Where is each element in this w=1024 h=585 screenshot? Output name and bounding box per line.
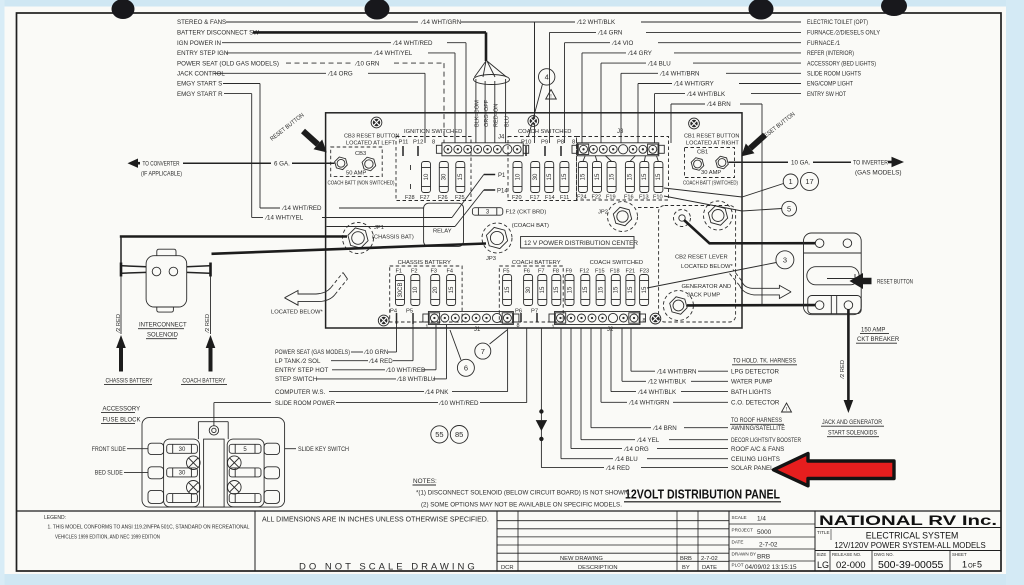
svg-text:COMPUTER W.S.: COMPUTER W.S. [275,389,325,396]
svg-text:FUSE BLOCK: FUSE BLOCK [103,418,141,424]
svg-text:SOLAR PANEL: SOLAR PANEL [731,465,774,472]
svg-text:JP3: JP3 [486,256,496,262]
svg-text:TITLE: TITLE [817,530,830,535]
svg-text:1: 1 [962,560,967,570]
svg-text:F6: F6 [524,269,531,275]
svg-text:F13: F13 [639,195,649,201]
svg-text:12VOLT DISTRIBUTION PANEL: 12VOLT DISTRIBUTION PANEL [625,488,780,502]
svg-text:RELAY: RELAY [433,229,452,235]
svg-text:∕14 BRN: ∕14 BRN [652,425,677,432]
svg-text:CB1: CB1 [697,150,708,156]
svg-text:SCALE: SCALE [732,515,747,520]
svg-text:AWNING/SATELLITE: AWNING/SATELLITE [731,425,785,432]
svg-text:15: 15 [547,173,553,180]
svg-text:J1: J1 [474,327,481,333]
svg-text:F20: F20 [512,195,522,201]
svg-text:15: 15 [656,173,662,180]
svg-text:1: 1 [789,177,793,186]
svg-text:TO INVERTER: TO INVERTER [853,161,889,167]
svg-text:50 AMP: 50 AMP [346,171,366,177]
svg-text:3: 3 [783,256,787,265]
svg-text:∕14 WHT/BLK: ∕14 WHT/BLK [637,389,677,396]
svg-text:15: 15 [583,286,589,293]
svg-text:LPG DETECTOR: LPG DETECTOR [731,368,780,375]
svg-text:P10: P10 [521,140,531,146]
svg-text:30: 30 [179,447,186,453]
svg-text:20: 20 [433,286,439,293]
svg-text:ENTRY STEP IGN: ENTRY STEP IGN [177,50,228,57]
svg-text:SLIDE ROOM POWER: SLIDE ROOM POWER [275,400,335,407]
svg-text:2-7-02: 2-7-02 [759,542,778,549]
svg-text:150 AMP: 150 AMP [861,328,885,334]
svg-text:F26: F26 [438,195,448,201]
svg-text:1/4: 1/4 [757,516,766,523]
svg-text:15: 15 [614,286,620,293]
svg-text:ENTRY STEP HOT: ENTRY STEP HOT [275,367,329,374]
svg-text:(GAS MODELS): (GAS MODELS) [855,170,902,177]
svg-text:30: 30 [442,173,448,180]
svg-text:6: 6 [464,364,468,373]
svg-text:85: 85 [455,430,463,439]
svg-text:8: 8 [432,140,435,146]
svg-text:∕2 RED: ∕2 RED [205,314,211,334]
svg-text:∕12 WHT/BLK: ∕12 WHT/BLK [576,19,616,26]
svg-text:F14: F14 [545,195,555,201]
svg-text:∕14 ORG: ∕14 ORG [623,446,649,453]
svg-text:GENERATOR AND: GENERATOR AND [682,284,732,290]
svg-text:ENTRY SW HOT: ENTRY SW HOT [807,91,846,98]
svg-text:COACH SWITCHED: COACH SWITCHED [590,260,643,266]
svg-text:LP TANK ∕2 SOL: LP TANK ∕2 SOL [275,358,321,365]
svg-text:EMGY START R: EMGY START R [177,91,223,98]
svg-text:!: ! [786,407,787,413]
svg-text:F12: F12 [580,269,590,275]
svg-text:CHASSIS BATTERY: CHASSIS BATTERY [398,260,451,266]
svg-text:PROJECT: PROJECT [732,528,754,533]
svg-text:DATE: DATE [702,565,717,571]
svg-text:C.O. DETECTOR: C.O. DETECTOR [731,400,780,407]
svg-text:15: 15 [505,286,511,293]
svg-text:F1: F1 [396,269,403,275]
svg-text:15: 15 [540,286,546,293]
svg-text:DECOR LIGHTS/TV BOOSTER: DECOR LIGHTS/TV BOOSTER [731,437,801,444]
svg-text:8: 8 [517,323,520,329]
svg-text:LOCATED BELOW*: LOCATED BELOW* [271,310,323,316]
svg-text:BATH LIGHTS: BATH LIGHTS [731,389,771,396]
svg-text:J4: J4 [498,135,505,141]
svg-text:DCR: DCR [501,565,514,571]
svg-text:∕12 WHT/BLK: ∕12 WHT/BLK [647,379,687,386]
svg-text:P14: P14 [497,189,508,195]
svg-text:15: 15 [562,173,568,180]
svg-text:ROOF A/C & FANS: ROOF A/C & FANS [731,446,784,453]
svg-text:7: 7 [481,347,485,356]
svg-text:∕14 WHT/GRN: ∕14 WHT/GRN [420,19,461,26]
svg-text:∕14 WHT/GRY: ∕14 WHT/GRY [673,81,714,88]
svg-text:RESET BUTTON: RESET BUTTON [877,280,913,286]
svg-text:DESCRIPTION: DESCRIPTION [578,565,618,571]
svg-text:∕14 RED: ∕14 RED [368,358,393,365]
svg-text:BRB: BRB [680,556,692,562]
svg-text:∕10 GRN: ∕10 GRN [354,60,379,67]
svg-text:SIZE: SIZE [817,552,827,557]
svg-text:IGN POWER IN: IGN POWER IN [177,40,221,47]
svg-text:BY: BY [682,565,690,571]
svg-text:∕14 ORG: ∕14 ORG [327,71,353,78]
svg-text:SLIDE ROOM LIGHTS: SLIDE ROOM LIGHTS [807,71,861,78]
svg-text:F12 (CKT BRD): F12 (CKT BRD) [506,210,547,216]
svg-text:5: 5 [787,204,791,213]
svg-text:COACH BATTERY: COACH BATTERY [182,378,225,385]
svg-text:15: 15 [581,173,587,180]
svg-text:10: 10 [413,286,419,293]
svg-text:15: 15 [642,286,648,293]
svg-text:CEILING LIGHTS: CEILING LIGHTS [731,456,780,463]
svg-text:8: 8 [572,140,575,146]
svg-text:500-39-00055: 500-39-00055 [878,559,944,571]
svg-text:POWER SEAT (GAS MODELS): POWER SEAT (GAS MODELS) [275,349,350,356]
svg-text:ELECTRIC TOILET (OPT): ELECTRIC TOILET (OPT) [807,19,868,26]
svg-text:F2: F2 [411,269,418,275]
svg-text:30: 30 [526,286,532,293]
svg-text:∕14 WHT/BLK: ∕14 WHT/BLK [686,91,726,98]
svg-text:∕10 GRN: ∕10 GRN [363,349,388,356]
svg-text:ACCESSORY: ACCESSORY [103,407,141,413]
svg-text:LEGEND:: LEGEND: [44,515,66,521]
svg-text:∕14 WHT/BRN: ∕14 WHT/BRN [659,71,700,78]
svg-text:START SOLENOIDS: START SOLENOIDS [828,431,877,437]
svg-text:COACH BATT (SWITCHED): COACH BATT (SWITCHED) [683,181,738,187]
svg-text:F19: F19 [606,195,616,201]
svg-text:F4: F4 [447,269,454,275]
svg-text:∕10 WHT/RED: ∕10 WHT/RED [385,367,426,374]
svg-text:LG: LG [817,560,829,570]
svg-text:10: 10 [424,173,430,180]
svg-text:VEHICLES 1999 EDITION, AND NEC: VEHICLES 1999 EDITION, AND NEC 1999 EDIT… [55,535,160,541]
svg-text:30 AMP: 30 AMP [701,170,721,176]
svg-text:∕14 BRN: ∕14 BRN [706,101,731,108]
svg-text:15: 15 [628,286,634,293]
svg-text:F28: F28 [405,195,415,201]
svg-text:F18: F18 [610,269,620,275]
svg-text:F5: F5 [503,269,510,275]
svg-text:F27: F27 [420,195,430,201]
svg-text:ELECTRICAL SYSTEM: ELECTRICAL SYSTEM [866,531,959,541]
svg-text:∕14 WHT/GRN: ∕14 WHT/GRN [628,400,669,407]
svg-text:∕14 WHT/RED: ∕14 WHT/RED [281,205,322,212]
svg-text:DRAWN BY: DRAWN BY [732,552,757,557]
svg-text:LOCATED AT LEFT: LOCATED AT LEFT [346,141,396,147]
svg-text:SHEET: SHEET [952,552,967,557]
svg-text:P12: P12 [413,140,423,146]
svg-text:JP2: JP2 [598,210,608,216]
svg-text:TO ROOF HARNESS: TO ROOF HARNESS [731,417,782,424]
svg-text:TO CONVERTER: TO CONVERTER [143,161,180,168]
svg-text:FURNACE ∕2/DIESELS ONLY: FURNACE ∕2/DIESELS ONLY [807,30,880,37]
svg-text:FURNACE ∕1: FURNACE ∕1 [807,40,841,47]
svg-text:J2: J2 [607,327,614,333]
svg-text:P1: P1 [498,173,506,179]
svg-text:∕14 YEL: ∕14 YEL [636,437,660,444]
svg-text:F9: F9 [566,269,573,275]
svg-text:STEREO & FANS: STEREO & FANS [177,19,226,26]
svg-text:FRONT SLIDE: FRONT SLIDE [92,447,126,453]
svg-text:4: 4 [545,73,549,82]
svg-text:DO NOT SCALE DRAWING: DO NOT SCALE DRAWING [299,562,478,573]
svg-text:F24: F24 [577,195,587,201]
svg-text:F7: F7 [538,269,545,275]
svg-text:P5: P5 [406,309,413,315]
svg-text:F21: F21 [626,269,636,275]
svg-text:∕14 WHT/BRN: ∕14 WHT/BRN [656,368,697,375]
svg-text:∕14 PNK: ∕14 PNK [424,389,449,396]
svg-text:!: ! [550,94,551,100]
svg-text:RELEASE NO.: RELEASE NO. [832,552,861,557]
svg-text:∕14 GRY: ∕14 GRY [627,50,652,57]
svg-text:IGNITION SWITCHED: IGNITION SWITCHED [404,129,462,135]
svg-text:∕14 WHT/YEL: ∕14 WHT/YEL [264,215,304,222]
svg-text:12 V POWER DISTRIBUTION CENTER: 12 V POWER DISTRIBUTION CENTER [524,240,638,247]
svg-text:F16: F16 [624,195,634,201]
svg-text:JP1: JP1 [374,225,384,231]
svg-text:NATIONAL RV Inc.: NATIONAL RV Inc. [819,513,997,528]
svg-text:15: 15 [609,173,615,180]
svg-text:STEP SWITCH: STEP SWITCH [275,376,317,383]
svg-text:CHASSIS BATTERY: CHASSIS BATTERY [106,378,153,385]
svg-text:BLU: BLU [505,116,511,127]
svg-text:1: 1 [425,325,428,331]
svg-text:∕18 WHT/BLU: ∕18 WHT/BLU [396,376,435,383]
svg-text:P8: P8 [557,140,564,146]
svg-text:∕14 BLU: ∕14 BLU [647,60,671,67]
svg-text:LOCATED AT RIGHT: LOCATED AT RIGHT [686,141,739,147]
svg-text:J3: J3 [617,129,624,135]
svg-text:P9: P9 [541,140,548,146]
svg-text:55: 55 [435,430,443,439]
svg-text:BATTERY DISCONNECT SW: BATTERY DISCONNECT SW [177,30,259,37]
svg-text:BED SLIDE: BED SLIDE [95,471,123,477]
svg-text:F15: F15 [595,269,605,275]
svg-text:F8: F8 [553,269,560,275]
svg-text:COACH SWITCHED: COACH SWITCHED [518,129,571,135]
svg-text:OF: OF [968,564,977,570]
svg-text:F22: F22 [592,195,602,201]
svg-text:15: 15 [628,173,634,180]
svg-text:10 GA.: 10 GA. [791,160,811,167]
svg-text:DATE: DATE [732,540,744,545]
svg-text:∕10 WHT/RED: ∕10 WHT/RED [438,400,479,407]
svg-text:CB2 RESET LEVER: CB2 RESET LEVER [675,255,728,261]
svg-text:30CB: 30CB [398,282,404,297]
svg-text:COACH BATTERY: COACH BATTERY [512,260,561,266]
svg-text:BRB: BRB [757,554,770,561]
svg-text:30: 30 [533,173,539,180]
svg-text:INTERCONNECT: INTERCONNECT [139,323,187,329]
svg-text:EMGY START S: EMGY START S [177,81,222,88]
svg-text:F17: F17 [530,195,540,201]
svg-text:CB3: CB3 [355,151,366,157]
svg-text:SOLENOID: SOLENOID [147,333,179,339]
svg-text:COACH BATT (NON SWITCHED): COACH BATT (NON SWITCHED) [328,181,395,187]
svg-text:5000: 5000 [757,529,772,536]
svg-text:04/09/02 13:15:15: 04/09/02 13:15:15 [745,564,797,571]
svg-text:1: 1 [552,325,555,331]
svg-text:DWG NO.: DWG NO. [874,552,894,557]
svg-text:JACK AND GENERATOR: JACK AND GENERATOR [822,420,883,426]
svg-text:6 GA.: 6 GA. [274,161,290,168]
svg-text:JACK PUMP: JACK PUMP [687,293,720,299]
svg-text:8: 8 [643,318,646,324]
svg-text:15: 15 [449,286,455,293]
svg-text:CB3 RESET BUTTON: CB3 RESET BUTTON [344,134,399,140]
svg-text:JACK CONTROL: JACK CONTROL [177,71,225,78]
svg-text:∕2 RED: ∕2 RED [840,360,846,380]
svg-text:F10: F10 [653,195,663,201]
svg-text:CKT BREAKER: CKT BREAKER [857,337,900,343]
svg-text:WATER PUMP: WATER PUMP [731,379,772,386]
svg-text:F3: F3 [431,269,438,275]
svg-text:*(1) DISCONNECT SOLENOID (BELO: *(1) DISCONNECT SOLENOID (BELOW CIRCUIT … [416,490,630,497]
svg-text:ALL DIMENSIONS ARE IN INCHES U: ALL DIMENSIONS ARE IN INCHES UNLESS OTHE… [262,517,489,524]
svg-text:ENG/COMP LIGHT: ENG/COMP LIGHT [807,81,853,88]
svg-text:(IF APPLICABLE): (IF APPLICABLE) [141,170,182,177]
svg-text:15: 15 [554,286,560,293]
svg-text:RED–ON: RED–ON [494,104,500,127]
svg-text:15: 15 [642,173,648,180]
svg-text:1. THIS MODEL CONFORMS TO ANSI: 1. THIS MODEL CONFORMS TO ANSI 119.2/NFP… [48,525,250,531]
svg-text:(CHASSIS BAT): (CHASSIS BAT) [372,235,414,241]
svg-text:POWER SEAT (OLD GAS MODELS): POWER SEAT (OLD GAS MODELS) [177,60,279,67]
svg-text:∕2 RED: ∕2 RED [116,314,122,334]
svg-text:NEW DRAWING: NEW DRAWING [560,556,603,562]
svg-text:∕14 WHT/YEL: ∕14 WHT/YEL [373,50,413,57]
svg-text:12V/120V POWER SYSTEM-ALL MODE: 12V/120V POWER SYSTEM-ALL MODELS [834,541,985,550]
svg-text:F23: F23 [640,269,650,275]
svg-text:LOCATED BELOW*: LOCATED BELOW* [681,264,733,270]
svg-text:F11: F11 [560,195,569,201]
svg-text:15: 15 [567,286,573,293]
svg-text:17: 17 [805,177,813,186]
svg-text:(2) SOME OPTIONS MAY NOT BE AV: (2) SOME OPTIONS MAY NOT BE AVAILABLE ON… [421,502,622,509]
svg-text:F25: F25 [455,195,465,201]
svg-text:02-000: 02-000 [836,560,866,571]
svg-text:P11: P11 [399,140,409,146]
svg-text:PLOT: PLOT [732,563,744,568]
svg-text:15: 15 [458,173,464,180]
svg-text:(COACH BAT): (COACH BAT) [512,223,549,229]
svg-text:∕14 WHT/RED: ∕14 WHT/RED [392,40,433,47]
svg-text:∕14 BLU: ∕14 BLU [614,456,638,463]
svg-text:∕14 VIO: ∕14 VIO [611,40,633,47]
svg-text:ACCESSORY (BED LIGHTS): ACCESSORY (BED LIGHTS) [807,60,876,67]
svg-text:∕14 GRN: ∕14 GRN [597,30,622,37]
svg-text:REFER (INTERIOR): REFER (INTERIOR) [807,50,854,57]
svg-text:TO HOLD. TK. HARNESS: TO HOLD. TK. HARNESS [733,358,796,365]
svg-text:15: 15 [598,286,604,293]
svg-text:10: 10 [515,173,521,180]
svg-text:5: 5 [977,560,982,570]
svg-text:NOTES:: NOTES: [413,478,437,485]
svg-text:15: 15 [595,173,601,180]
svg-text:SLIDE KEY SWITCH: SLIDE KEY SWITCH [298,447,349,453]
svg-text:30: 30 [179,471,186,477]
svg-text:2-7-02: 2-7-02 [701,556,718,562]
svg-text:∕14 RED: ∕14 RED [605,465,630,472]
svg-text:CB1 RESET BUTTON: CB1 RESET BUTTON [684,134,739,140]
